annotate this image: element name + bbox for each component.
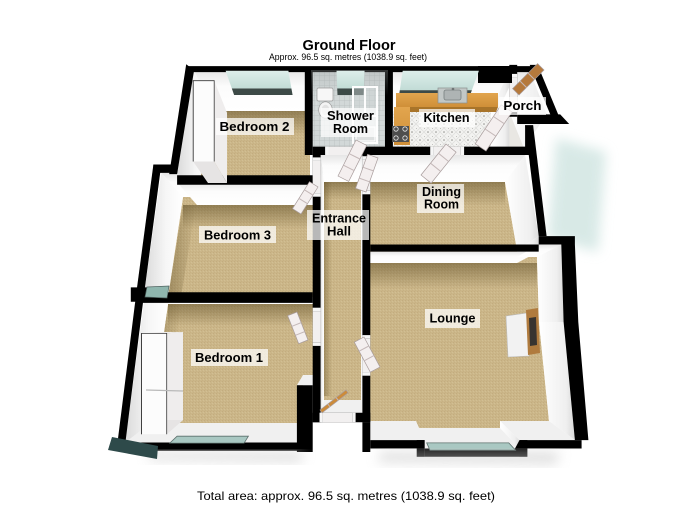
svg-text:Approx. 96.5 sq. metres (1038.: Approx. 96.5 sq. metres (1038.9 sq. feet… (269, 52, 427, 63)
svg-text:Lounge: Lounge (430, 311, 476, 326)
svg-text:Total area: approx. 96.5 sq. m: Total area: approx. 96.5 sq. metres (103… (197, 490, 495, 503)
svg-text:Bedroom 1: Bedroom 1 (195, 350, 264, 365)
svg-text:Porch: Porch (503, 98, 541, 113)
svg-text:Bedroom 3: Bedroom 3 (204, 228, 271, 243)
svg-text:Bedroom 2: Bedroom 2 (220, 119, 290, 134)
svg-text:Room: Room (333, 121, 368, 136)
svg-text:Room: Room (424, 197, 459, 212)
svg-text:Kitchen: Kitchen (424, 110, 470, 125)
svg-text:Hall: Hall (327, 224, 351, 239)
